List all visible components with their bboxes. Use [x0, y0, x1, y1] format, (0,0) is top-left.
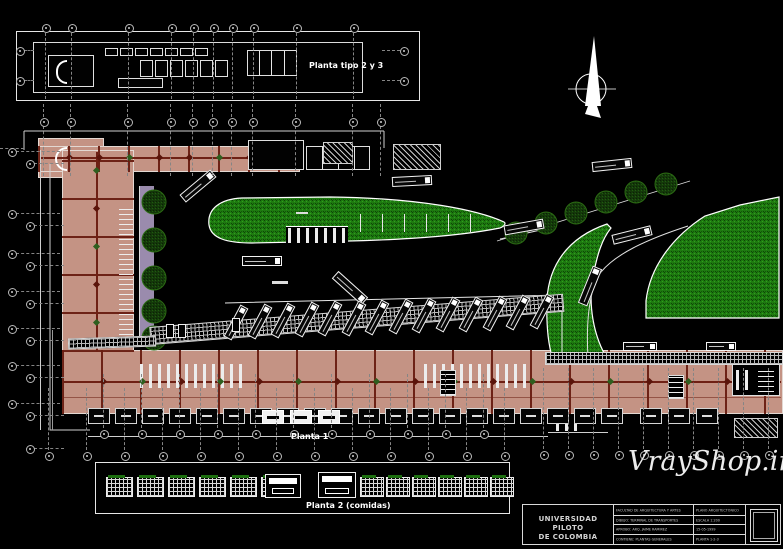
grid-bubble: [615, 451, 624, 460]
room-module: [385, 408, 407, 424]
grid-bubble: [210, 24, 219, 33]
room-module: [223, 408, 245, 424]
stair-detail: [440, 370, 456, 396]
grid-leader-line: [296, 33, 297, 99]
ground-floor-label: Planta 1: [291, 432, 328, 441]
grid-leader-line: [445, 374, 446, 428]
grid-bubble: [67, 118, 76, 127]
title-block-row-label: DIBUJO: TERMINAL DE TRANSPORTES: [616, 518, 686, 522]
grid-leader-line: [718, 368, 719, 449]
service-core-bars: [758, 368, 774, 392]
strip-block-divider: [271, 51, 272, 75]
grid-leader-line: [34, 225, 64, 226]
stair-detail: [668, 375, 684, 399]
strip-cell: [200, 60, 213, 77]
grid-leader-line: [352, 104, 353, 117]
grid-leader-line: [428, 388, 429, 450]
grid-leader-line: [34, 340, 64, 341]
grid-bubble: [26, 374, 35, 383]
room-module: [142, 408, 164, 424]
dining-unit: [230, 477, 257, 497]
grid-leader-line: [16, 403, 60, 404]
strip-cell: [195, 48, 208, 56]
grid-bubble: [189, 118, 198, 127]
dining-unit: [438, 477, 462, 497]
wing-hatch-block: [323, 142, 353, 164]
bus: [623, 342, 657, 351]
grid-bubble: [387, 452, 396, 461]
grid-leader-line: [127, 104, 128, 117]
service-core-bars: [736, 370, 754, 390]
grid-bubble: [590, 451, 599, 460]
title-block-row-label: FACULTAD DE ARQUITECTURA Y ARTES: [616, 509, 686, 513]
title-block-institution: UNIVERSIDAD PILOTO DE COLOMBIA: [523, 505, 613, 544]
lawn-tick: [382, 214, 383, 232]
grid-leader-line: [768, 368, 769, 449]
grid-leader-line: [71, 33, 72, 99]
wing-room-divider: [354, 147, 355, 169]
grid-leader-line: [743, 368, 744, 449]
title-block-row-value: PLANTA 1-2-3: [696, 537, 740, 541]
kiosk-module: [318, 410, 340, 424]
grid-leader-line: [407, 374, 408, 428]
grid-bubble: [8, 362, 17, 371]
wedge-lawn: [646, 197, 779, 318]
grid-bubble: [366, 430, 375, 439]
dining-unit: [464, 477, 488, 497]
strip-cell: [105, 48, 118, 56]
grid-leader-line: [193, 33, 194, 99]
hook-lawn: [547, 224, 611, 360]
grid-bubble: [292, 118, 301, 127]
watermark-text: VrayShop.ir: [628, 446, 783, 477]
scale-bar-line: [548, 432, 608, 433]
grid-leader-line: [213, 33, 214, 99]
grid-leader-line: [192, 126, 193, 176]
grid-bubble: [124, 118, 133, 127]
dining-unit: [137, 477, 164, 497]
room-module: [169, 408, 191, 424]
grid-leader-line: [483, 374, 484, 428]
grid-leader-line: [212, 126, 213, 176]
platform-post: [178, 324, 186, 338]
grid-leader-line: [171, 33, 172, 99]
grid-leader-line: [16, 253, 60, 254]
strip-cell: [185, 60, 198, 77]
site-tree: [565, 202, 587, 224]
grid-leader-line: [170, 104, 171, 117]
grid-leader-line: [86, 388, 87, 450]
institution-line2: DE COLOMBIA: [523, 533, 613, 542]
grid-bubble: [26, 222, 35, 231]
grid-leader-line: [200, 388, 201, 450]
grid-leader-line: [48, 388, 49, 450]
dining-unit: [386, 477, 410, 497]
room-module: [696, 408, 718, 424]
grid-leader-line: [380, 126, 381, 176]
grid-leader-line: [16, 365, 60, 366]
walkway-tree: [142, 228, 166, 252]
grid-leader-line: [141, 374, 142, 428]
grid-leader-line: [212, 104, 213, 117]
lawn-tick: [448, 214, 449, 232]
dimension-line: [40, 150, 41, 430]
grid-leader-line: [643, 368, 644, 449]
food-counter: [265, 474, 301, 498]
grid-bubble: [26, 160, 35, 169]
grid-bubble: [8, 400, 17, 409]
strip-cell: [215, 60, 228, 77]
grid-bubble: [26, 300, 35, 309]
strip-cell: [150, 48, 163, 56]
grid-bubble: [176, 430, 185, 439]
grid-leader-line: [352, 388, 353, 450]
grid-bubble: [16, 47, 25, 56]
strip-cell: [140, 60, 153, 77]
grid-leader-line: [593, 368, 594, 449]
grid-bubble: [400, 47, 409, 56]
grid-leader-line: [668, 368, 669, 449]
north-arrow-tail: [585, 106, 601, 118]
road-marking: [296, 212, 308, 214]
room-module: [547, 408, 569, 424]
grid-leader-line: [390, 388, 391, 450]
grid-leader-line: [16, 291, 60, 292]
food-floor-label: Planta 2 (comidas): [306, 501, 391, 510]
grid-bubble: [8, 250, 17, 259]
grid-bubble: [425, 452, 434, 461]
grid-bubble: [190, 24, 199, 33]
grid-bubble: [83, 452, 92, 461]
grid-bubble: [229, 24, 238, 33]
strip-cluster: [118, 78, 163, 88]
strip-block-divider: [259, 51, 260, 75]
title-block-row-line: [613, 515, 745, 516]
grid-leader-line: [466, 388, 467, 450]
room-module: [668, 408, 690, 424]
title-block-row-line: [613, 534, 745, 535]
walkway-tree: [142, 299, 166, 323]
grid-leader-line: [45, 33, 46, 99]
grid-leader-line: [293, 374, 294, 428]
grid-bubble: [442, 430, 451, 439]
grid-bubble: [214, 430, 223, 439]
strip-cell: [135, 48, 148, 56]
dining-unit: [168, 477, 195, 497]
grid-leader-line: [124, 388, 125, 450]
lawn-tick: [426, 214, 427, 232]
grid-bubble: [121, 452, 130, 461]
grid-leader-line: [295, 104, 296, 117]
bus: [706, 342, 736, 351]
dining-unit: [106, 477, 133, 497]
grid-leader-line: [34, 377, 64, 378]
grid-leader-line: [252, 126, 253, 176]
grid-bubble: [311, 452, 320, 461]
grid-leader-line: [231, 126, 232, 176]
grid-bubble: [350, 24, 359, 33]
grid-bubble: [68, 24, 77, 33]
grid-bubble: [400, 77, 409, 86]
grid-bubble: [252, 430, 261, 439]
grid-leader-line: [276, 388, 277, 450]
grid-bubble: [125, 24, 134, 33]
lawn-tick: [404, 214, 405, 232]
food-counter: [318, 472, 356, 498]
grid-leader-line: [24, 80, 34, 81]
grid-leader-line: [34, 415, 64, 416]
grid-leader-line: [16, 151, 60, 152]
grid-leader-line: [232, 33, 233, 99]
grid-leader-line: [70, 104, 71, 117]
grid-leader-line: [128, 33, 129, 99]
title-block-row-value: PLANO ARQUITECTONICO: [696, 509, 740, 513]
bus: [242, 256, 282, 266]
grid-bubble: [26, 337, 35, 346]
grid-bubble: [273, 452, 282, 461]
grid-leader-line: [70, 126, 71, 176]
site-tree: [595, 191, 617, 213]
title-block-row-label: CONTIENE: PLANTAS GENERALES: [616, 537, 686, 541]
strip-cell: [120, 48, 133, 56]
grid-leader-line: [179, 374, 180, 428]
cad-drawing-canvas: Planta tipo 2 y 3 Planta 1 Planta 2 (com…: [0, 0, 783, 549]
dining-unit: [360, 477, 384, 497]
grid-bubble: [40, 118, 49, 127]
walkway-tree: [142, 190, 166, 214]
grid-leader-line: [231, 104, 232, 117]
grid-bubble: [26, 262, 35, 271]
grid-bubble: [349, 118, 358, 127]
title-block-row-line: [613, 524, 745, 525]
grid-bubble: [565, 451, 574, 460]
grid-leader-line: [331, 374, 332, 428]
grid-leader-line: [170, 126, 171, 176]
grid-leader-line: [217, 374, 218, 428]
platform-post: [232, 318, 240, 332]
grid-leader-line: [24, 50, 34, 51]
grid-bubble: [138, 430, 147, 439]
grid-bubble: [45, 452, 54, 461]
strip-cell: [180, 48, 193, 56]
title-block-row-value: 15-05-1999: [696, 528, 740, 532]
grid-bubble: [249, 118, 258, 127]
road-marking: [272, 281, 288, 284]
grid-leader-line: [253, 33, 254, 99]
grid-leader-line: [238, 388, 239, 450]
grid-bubble: [404, 430, 413, 439]
title-block-row-label: APROBO: ARQ. JAIME RAMIREZ: [616, 528, 686, 532]
grid-leader-line: [103, 374, 104, 428]
grid-leader-line: [618, 368, 619, 449]
grid-leader-line: [543, 368, 544, 449]
grid-bubble: [463, 452, 472, 461]
grid-bubble: [8, 325, 17, 334]
grid-leader-line: [34, 265, 64, 266]
room-module: [601, 408, 623, 424]
grid-leader-line: [16, 213, 60, 214]
grid-bubble: [228, 118, 237, 127]
grid-bubble: [328, 430, 337, 439]
strip-cell: [155, 60, 168, 77]
site-tree: [655, 173, 677, 195]
title-block-divider: [745, 505, 746, 544]
teardrop-lawn: [209, 197, 505, 243]
grid-bubble: [377, 118, 386, 127]
grid-bubble: [197, 452, 206, 461]
institution-line1: UNIVERSIDAD PILOTO: [523, 515, 613, 533]
grid-bubble: [209, 118, 218, 127]
grid-bubble: [167, 118, 176, 127]
lawn-notch-bars: [288, 228, 346, 243]
room-module: [439, 408, 461, 424]
grid-leader-line: [16, 328, 60, 329]
grid-bubble: [8, 210, 17, 219]
wing-hatch-block: [393, 144, 441, 170]
grid-leader-line: [352, 126, 353, 176]
grid-leader-line: [34, 448, 64, 449]
grid-leader-line: [192, 104, 193, 117]
grid-leader-line: [382, 80, 400, 81]
room-module: [412, 408, 434, 424]
grid-bubble: [235, 452, 244, 461]
grid-bubble: [100, 430, 109, 439]
grid-leader-line: [252, 104, 253, 117]
grid-bubble: [26, 412, 35, 421]
room-module: [115, 408, 137, 424]
kiosk-module: [262, 410, 284, 424]
lawn-tick: [470, 214, 471, 232]
grid-leader-line: [295, 126, 296, 176]
title-block-logo-box: [750, 509, 778, 542]
grid-bubble: [540, 451, 549, 460]
room-module: [466, 408, 488, 424]
grid-leader-line: [34, 163, 64, 164]
room-module: [88, 408, 110, 424]
site-tree: [625, 181, 647, 203]
grid-leader-line: [127, 126, 128, 176]
title-block-row-value: ESCALA 1:200: [696, 518, 740, 522]
strip-block-divider: [284, 51, 285, 75]
grid-bubble: [250, 24, 259, 33]
grid-bubble: [8, 148, 17, 157]
grid-bubble: [480, 430, 489, 439]
grid-bubble: [16, 77, 25, 86]
dining-unit: [199, 477, 226, 497]
grid-leader-line: [43, 104, 44, 117]
bus: [392, 175, 432, 187]
north-arrow: [585, 36, 601, 106]
lawn-tick: [360, 214, 361, 232]
scale-bar: [556, 424, 582, 431]
grid-bubble: [501, 452, 510, 461]
grid-bubble: [26, 445, 35, 454]
grid-bubble: [349, 452, 358, 461]
room-module: [520, 408, 542, 424]
walkway-tree: [142, 266, 166, 290]
grid-leader-line: [693, 368, 694, 449]
grid-bubble: [293, 24, 302, 33]
strip-block: [247, 50, 297, 76]
title-block: UNIVERSIDAD PILOTO DE COLOMBIA FACULTAD …: [522, 504, 781, 545]
dining-unit: [490, 477, 514, 497]
grid-leader-line: [382, 50, 400, 51]
grid-leader-line: [369, 374, 370, 428]
grid-leader-line: [162, 388, 163, 450]
grid-bubble: [8, 288, 17, 297]
dining-unit: [412, 477, 436, 497]
grid-bubble: [42, 24, 51, 33]
grid-leader-line: [380, 104, 381, 117]
service-hatch: [734, 418, 778, 438]
grid-bubble: [159, 452, 168, 461]
grid-bubble: [168, 24, 177, 33]
grid-leader-line: [255, 374, 256, 428]
typical-floor-label: Planta tipo 2 y 3: [309, 61, 383, 70]
platform-post: [166, 324, 174, 338]
grid-leader-line: [34, 303, 64, 304]
grid-leader-line: [504, 388, 505, 450]
grid-leader-line: [568, 368, 569, 449]
